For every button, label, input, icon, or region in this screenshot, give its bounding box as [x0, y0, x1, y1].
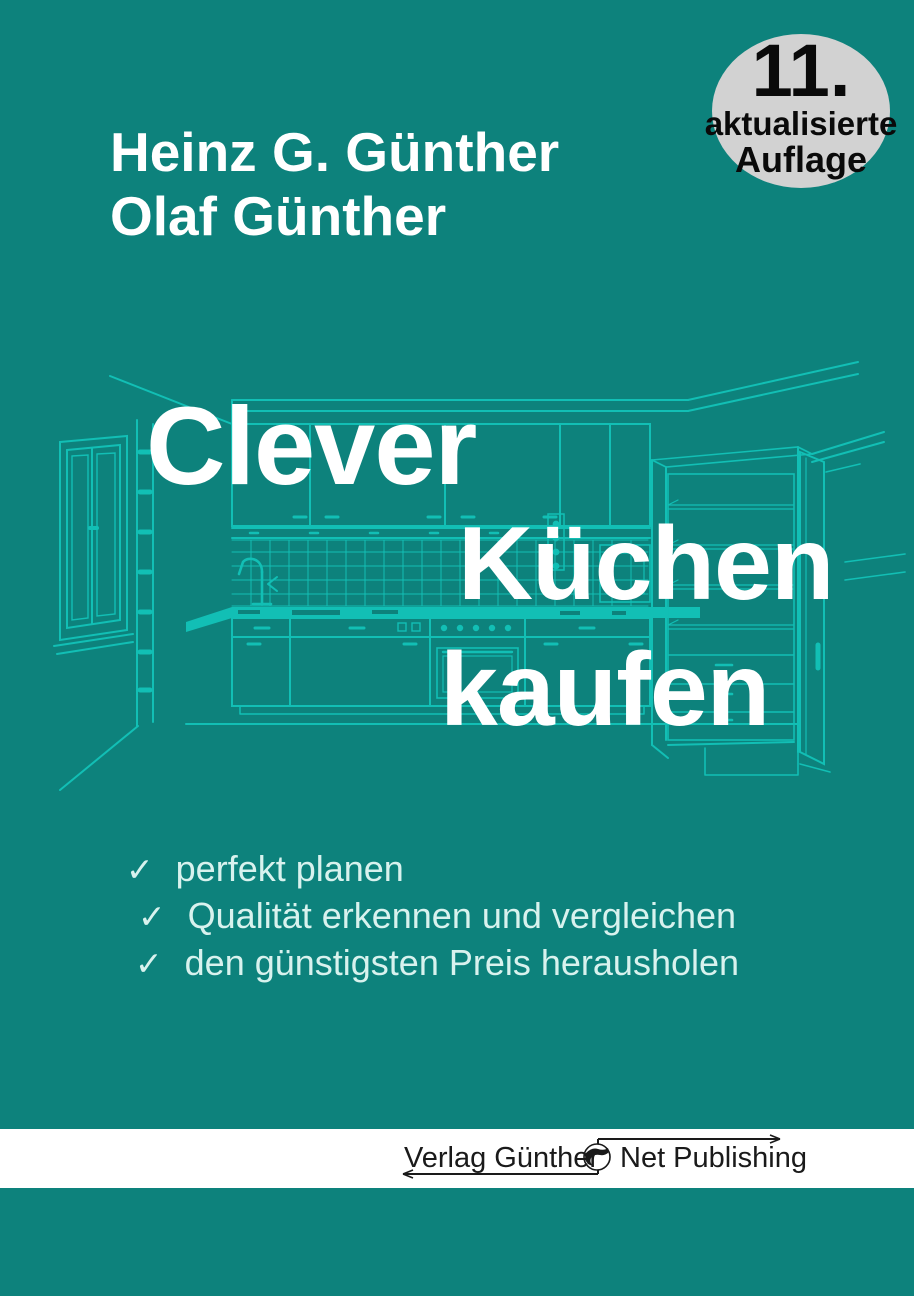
publisher-band: Verlag Günther Net Publishing	[0, 1129, 914, 1188]
checkmark-icon: ✓	[138, 894, 166, 940]
list-item: ✓ den günstigsten Preis herausholen	[126, 940, 739, 987]
benefits-list: ✓ perfekt planen ✓ Qualität erkennen und…	[126, 846, 739, 987]
list-item: ✓ perfekt planen	[126, 846, 739, 893]
bullet-text: perfekt planen	[176, 846, 404, 892]
book-cover: 11. aktualisierte Auflage Heinz G. Günth…	[0, 0, 914, 1296]
title-line-3: kaufen	[440, 638, 769, 742]
checkmark-icon: ✓	[126, 847, 154, 893]
checkmark-icon: ✓	[135, 941, 163, 987]
publisher-logo: Verlag Günther Net Publishing	[396, 1129, 796, 1188]
list-item: ✓ Qualität erkennen und vergleichen	[126, 893, 739, 940]
title-line-1: Clever	[146, 392, 476, 502]
publisher-name-left: Verlag Günther	[404, 1142, 599, 1175]
bullet-text: Qualität erkennen und vergleichen	[188, 893, 736, 939]
edition-word-2: Auflage	[735, 142, 867, 178]
author-line-2: Olaf Günther	[110, 184, 559, 248]
edition-word-1: aktualisierte	[705, 107, 898, 142]
publisher-name-right: Net Publishing	[620, 1142, 807, 1175]
title-line-2: Küchen	[458, 512, 833, 616]
edition-number: 11.	[752, 38, 851, 105]
edition-badge: 11. aktualisierte Auflage	[712, 34, 890, 188]
author-block: Heinz G. Günther Olaf Günther	[110, 120, 559, 248]
bullet-text: den günstigsten Preis herausholen	[185, 940, 739, 986]
window	[54, 436, 133, 654]
author-line-1: Heinz G. Günther	[110, 120, 559, 184]
